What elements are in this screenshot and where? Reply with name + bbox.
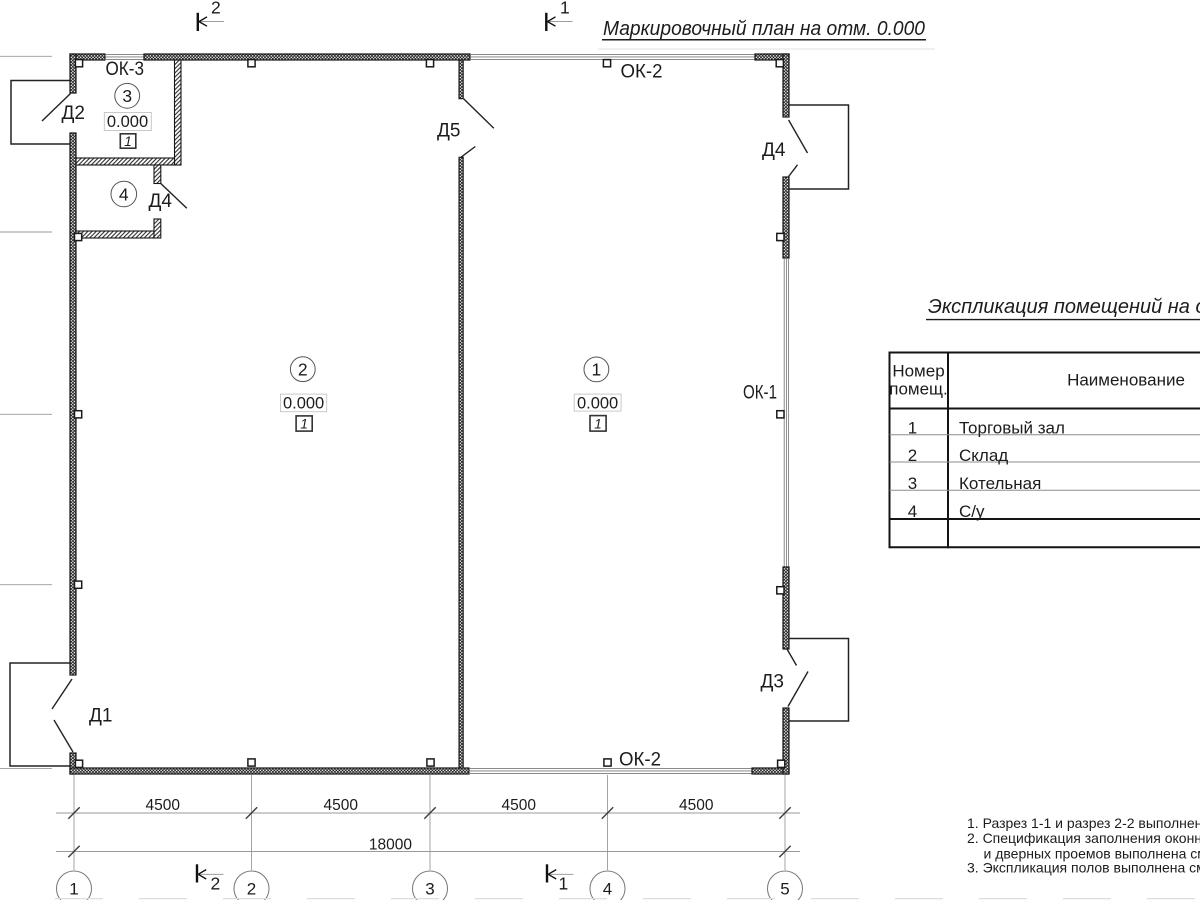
svg-text:5: 5: [780, 880, 789, 899]
svg-text:1: 1: [124, 134, 132, 149]
svg-text:4: 4: [119, 184, 129, 204]
svg-text:2: 2: [908, 446, 917, 465]
svg-text:3: 3: [425, 880, 434, 899]
svg-text:1: 1: [559, 874, 569, 894]
svg-text:Д3: Д3: [761, 672, 784, 693]
svg-text:1: 1: [300, 417, 308, 432]
svg-text:Склад: Склад: [959, 446, 1008, 465]
svg-text:4500: 4500: [679, 797, 714, 814]
svg-text:Д5: Д5: [437, 121, 460, 142]
svg-text:Номер: Номер: [892, 362, 944, 381]
svg-text:ОК-2: ОК-2: [621, 62, 663, 83]
svg-text:1: 1: [594, 416, 602, 431]
svg-text:4500: 4500: [324, 797, 359, 814]
svg-text:1: 1: [69, 880, 78, 899]
svg-text:4: 4: [603, 880, 612, 899]
svg-text:ОК-1: ОК-1: [743, 383, 777, 404]
svg-text:Д2: Д2: [62, 103, 85, 124]
svg-text:18000: 18000: [369, 837, 412, 854]
svg-text:Экспликация помещений на отм: Экспликация помещений на отм: [928, 296, 1200, 318]
svg-text:Маркировочный план на отм. 0.0: Маркировочный план на отм. 0.000: [603, 17, 926, 40]
svg-text:3: 3: [908, 474, 917, 493]
svg-text:помещ.: помещ.: [889, 380, 948, 399]
svg-text:3. Экспликация полов выполнена: 3. Экспликация полов выполнена см. лист …: [967, 860, 1200, 876]
svg-text:4500: 4500: [502, 797, 537, 814]
svg-text:Котельная: Котельная: [959, 474, 1041, 493]
svg-text:ОК-3: ОК-3: [106, 59, 145, 80]
svg-text:ОК-2: ОК-2: [619, 750, 661, 771]
svg-text:Наименование: Наименование: [1067, 371, 1185, 390]
svg-text:1: 1: [560, 0, 570, 18]
svg-text:1. Разрез 1-1 и разрез 2-2 вып: 1. Разрез 1-1 и разрез 2-2 выполнены на …: [967, 815, 1200, 831]
svg-text:Д4: Д4: [762, 140, 786, 161]
svg-text:2: 2: [211, 874, 221, 894]
svg-text:Д4: Д4: [149, 191, 173, 212]
svg-text:2: 2: [247, 880, 256, 899]
svg-text:0.000: 0.000: [577, 394, 618, 412]
svg-text:2: 2: [298, 360, 308, 380]
svg-text:4500: 4500: [146, 797, 181, 814]
svg-text:2. Спецификация заполнения око: 2. Спецификация заполнения оконных: [967, 830, 1200, 846]
svg-text:2: 2: [211, 0, 221, 18]
svg-text:Торговый зал: Торговый зал: [959, 419, 1065, 438]
svg-text:3: 3: [122, 86, 132, 106]
svg-text:1: 1: [592, 360, 602, 380]
svg-text:Д1: Д1: [89, 706, 112, 727]
svg-text:0.000: 0.000: [283, 394, 324, 412]
svg-text:1: 1: [908, 419, 917, 438]
svg-text:С/у: С/у: [959, 502, 985, 521]
svg-text:0.000: 0.000: [107, 113, 148, 131]
svg-text:4: 4: [908, 502, 917, 521]
